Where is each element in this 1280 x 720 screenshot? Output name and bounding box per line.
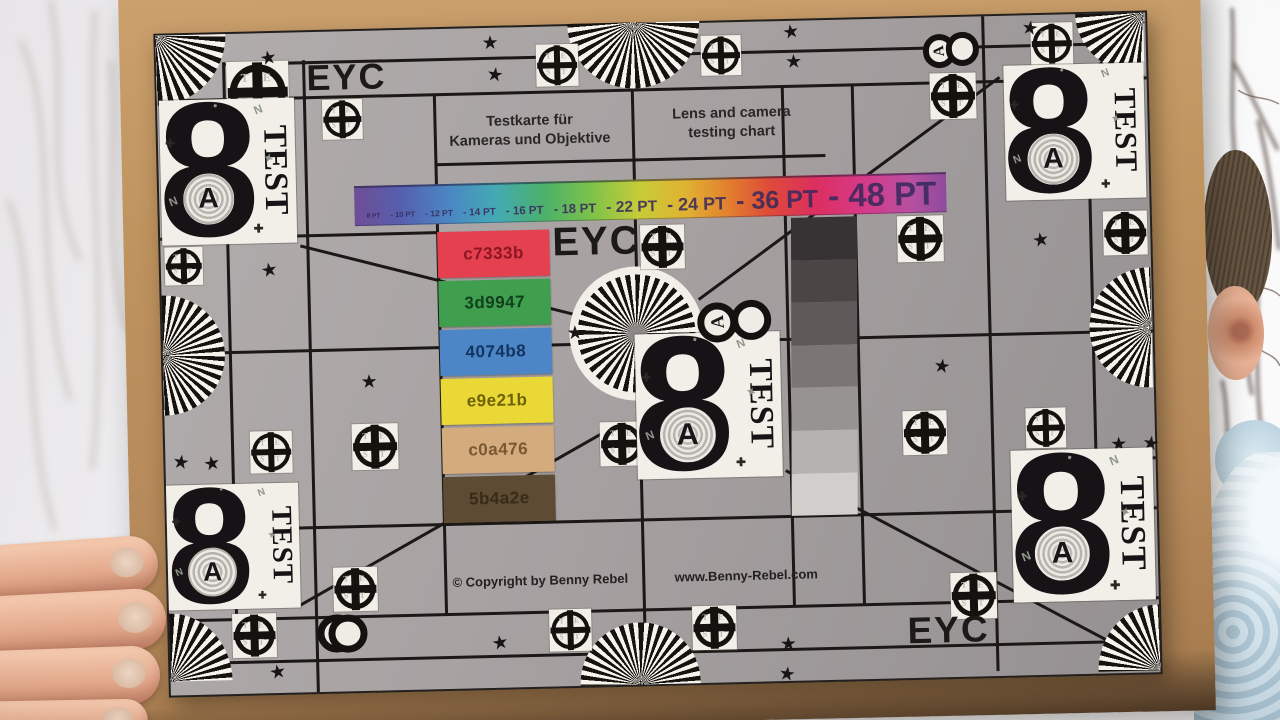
star-marker: ★ (566, 324, 583, 343)
cross-marker-letter: T (546, 52, 552, 60)
cross-marker-letter: S (908, 242, 913, 251)
cross-marker-letter: S (546, 68, 551, 76)
cross-marker-letter: E (929, 418, 935, 426)
cross-marker-letter: S (332, 122, 336, 130)
cross-marker-letter: T (650, 233, 656, 241)
title-german-line2: Kameras und Objektive (449, 129, 611, 152)
cross-marker-letter: E (957, 81, 963, 90)
circled-a-letter: A (1051, 536, 1073, 571)
title-german-line1: Testkarte für (486, 111, 573, 132)
test-block-decor-glyph: ✚ (1110, 579, 1120, 591)
cross-marker-letter: T (702, 614, 708, 622)
circled-a-letter: A (676, 417, 699, 453)
test-block: 8TESTAN✚✦N✚▪ (159, 98, 297, 246)
cross-marker-letter: T (362, 432, 368, 441)
star-marker: ★ (481, 34, 498, 53)
cross-marker-letter: S (703, 631, 708, 639)
color-patch: 5b4a2e (443, 474, 556, 523)
color-patch-label: e9e21b (466, 390, 527, 411)
test-block: 8TESTAN✚✦N✚▪ (166, 483, 301, 611)
cross-marker-letter: T (610, 430, 616, 438)
cross-marker: TEST (692, 605, 737, 650)
grayscale-step (792, 472, 858, 516)
cross-marker: TEST (536, 44, 579, 87)
cross-marker-letter: S (344, 592, 349, 600)
copyright-text: © Copyright by Benny Rebel (444, 553, 637, 608)
mini-eight-marker: A (696, 295, 773, 346)
mini-eight-marker: A (921, 28, 980, 71)
star-marker: ★ (777, 664, 796, 685)
cross-marker-letter: T (957, 98, 963, 107)
cross-marker-letter: E (626, 430, 632, 438)
cross-marker-letter: S (1113, 236, 1118, 244)
fingernail (102, 707, 134, 720)
star-marker: ★ (268, 662, 288, 684)
cross-marker: TEST (322, 99, 363, 140)
cross-marker-letter: T (940, 81, 946, 90)
cross-marker-letter: T (908, 224, 914, 233)
font-size-label: - 36 PT (736, 185, 819, 216)
cross-marker: TEST (929, 72, 976, 119)
cross-marker: TEST (897, 215, 944, 262)
eyc-label-top-left: EYC (306, 58, 387, 96)
cross-marker-letter: T (725, 58, 730, 66)
cross-marker-letter: T (929, 435, 935, 443)
color-patch: 4074b8 (439, 328, 552, 377)
test-chart: EYC EYC EYC Testkarte für Kameras und Ob… (153, 10, 1162, 697)
cross-marker-letter: T (1113, 219, 1119, 227)
siemens-fan (161, 294, 226, 415)
cross-marker-letter: T (913, 419, 919, 427)
cross-marker-letter: E (724, 42, 729, 50)
cross-marker: TEST (250, 431, 293, 474)
test-block: 8TESTAN✚✦N✚▪ (635, 331, 783, 479)
cross-marker-letter: S (913, 436, 918, 444)
finger (0, 587, 167, 656)
circled-a-letter: A (203, 556, 223, 587)
eyc-label-bottom-right: EYC (907, 610, 990, 649)
eyc-label-center: EYC (552, 220, 641, 262)
test-block-decor-glyph: ✚ (258, 591, 267, 601)
person-ear (1208, 286, 1264, 380)
color-patch: e9e21b (441, 376, 554, 425)
cross-marker-letter: S (941, 99, 946, 108)
cross-marker: TEST (1103, 210, 1148, 255)
cross-marker-letter: T (275, 454, 281, 462)
test-block: 8TESTAN✚✦N✚▪ (1003, 62, 1146, 200)
font-size-label: - 16 PT (506, 205, 544, 218)
cross-marker-letter: E (258, 621, 264, 629)
cross-marker-letter: T (718, 630, 724, 638)
cross-marker-letter: E (379, 432, 385, 441)
font-size-label: - 14 PT (463, 207, 496, 219)
color-patch-label: 4074b8 (465, 341, 526, 362)
cross-marker-letter: E (1129, 219, 1135, 227)
test-block-decor-glyph: ✚ (172, 518, 181, 528)
test-word: TEST (264, 485, 300, 606)
mini-eight-circle (729, 298, 772, 341)
mini-eight-circle (329, 614, 368, 653)
test-block: 8TESTAN✚✦N✚▪ (1010, 447, 1156, 602)
circled-a-letter: A (198, 182, 219, 215)
cross-marker-letter: S (610, 447, 615, 455)
grayscale-step (792, 429, 858, 473)
test-block-decor-glyph: ✚ (1101, 179, 1110, 190)
font-size-bar: 8 PT- 10 PT- 12 PT- 14 PT- 16 PT- 18 PT-… (354, 172, 947, 226)
grayscale-step (791, 387, 857, 431)
font-size-label: - 10 PT (390, 210, 415, 220)
color-patch-label: 5b4a2e (469, 488, 530, 509)
color-patch: 3d9947 (438, 279, 551, 328)
cross-marker-letter: T (626, 446, 632, 454)
font-size-label: - 48 PT (828, 174, 937, 215)
cross-marker-letter: T (574, 632, 580, 640)
star-marker: ★ (485, 65, 504, 86)
test-word: TEST (1111, 450, 1154, 597)
cross-marker-letter: T (1129, 235, 1135, 243)
finger (0, 699, 148, 720)
cross-marker-letter: E (574, 616, 580, 624)
grayscale-step (791, 259, 857, 303)
font-size-label: - 22 PT (606, 198, 657, 217)
fingernail (117, 601, 154, 634)
cross-marker-letter: E (718, 613, 724, 621)
star-marker: ★ (258, 48, 278, 70)
cross-marker-letter: S (243, 638, 248, 646)
fingernail (111, 657, 146, 688)
mini-eight-marker: A (317, 611, 367, 656)
test-block-decor-glyph: ✚ (1017, 490, 1027, 502)
star-marker: ★ (932, 356, 951, 377)
cross-marker: TEST (333, 567, 378, 612)
font-size-label: 8 PT (367, 213, 381, 220)
cross-marker-letter: S (651, 250, 656, 258)
color-patch: c7333b (437, 230, 550, 279)
siemens-fan (579, 621, 700, 686)
cross-marker-letter: T (359, 592, 365, 600)
cross-marker-letter: T (331, 107, 336, 115)
star-marker: ★ (781, 21, 801, 43)
cross-marker-letter: T (710, 43, 715, 51)
mini-eight-a-letter: A (707, 315, 729, 330)
cross-marker-letter: T (260, 439, 266, 447)
title-box-german: Testkarte für Kameras und Objektive (433, 97, 626, 166)
cross-marker-letter: E (666, 233, 672, 241)
color-patch: c0a476 (442, 425, 555, 474)
cross-marker-letter: T (961, 581, 967, 590)
star-marker: ★ (490, 632, 510, 654)
font-size-label: - 12 PT (425, 208, 453, 219)
star-marker: ★ (259, 260, 279, 282)
cross-marker-letter: T (259, 638, 265, 646)
cross-marker-letter: T (559, 617, 565, 625)
grayscale-wedge (791, 216, 858, 516)
title-english-line2: testing chart (688, 122, 775, 143)
cross-marker-letter: S (260, 455, 265, 463)
star-marker: ★ (360, 373, 377, 392)
cross-marker-letter: T (561, 68, 567, 76)
grayscale-step (791, 216, 857, 260)
cross-marker-letter: S (961, 599, 966, 608)
cross-marker-letter: E (359, 575, 365, 583)
color-patch-label: c0a476 (468, 439, 528, 460)
color-patch-column: c7333b3d99474074b8e9e21bc0a4765b4a2e (437, 230, 556, 527)
cross-marker: TEST (352, 423, 399, 470)
color-patch-label: c7333b (463, 243, 524, 264)
cross-marker-letter: T (379, 449, 385, 458)
circled-a-letter: A (1043, 142, 1064, 175)
siemens-fan (1088, 267, 1153, 388)
grayscale-step (791, 301, 857, 345)
left-branches (8, 0, 125, 530)
cross-marker-letter: T (666, 249, 672, 257)
cross-marker: TEST (549, 609, 592, 652)
test-word: TEST (740, 334, 781, 474)
font-size-label: - 18 PT (553, 200, 596, 216)
cross-marker-letter: E (924, 224, 930, 233)
star-marker: ★ (785, 53, 802, 72)
font-size-label: - 24 PT (667, 193, 727, 215)
cross-marker: TEST (640, 224, 685, 269)
test-word: TEST (255, 100, 296, 240)
cross-marker-letter: S (363, 450, 368, 459)
star-marker: ★ (780, 635, 797, 654)
title-box-english: Lens and camera testing chart (637, 90, 826, 156)
cross-marker: TEST (701, 35, 742, 76)
test-block-decor-glyph: ✚ (1010, 101, 1019, 112)
test-block-decor-glyph: ✚ (254, 223, 264, 235)
cross-marker-letter: E (275, 438, 281, 446)
test-block-decor-glyph: ✚ (736, 457, 746, 469)
cross-marker-letter: E (561, 52, 567, 60)
color-patch-label: 3d9947 (464, 292, 525, 313)
cross-marker-letter: S (559, 633, 564, 641)
photo-stage: EYC EYC EYC Testkarte für Kameras und Ob… (0, 0, 1280, 720)
cross-marker-letter: E (263, 72, 271, 84)
fingernail (109, 546, 145, 578)
cross-marker-letter: E (978, 581, 984, 590)
cross-marker-letter: E (346, 106, 351, 114)
siemens-fan (567, 21, 701, 90)
cross-marker-letter: T (978, 598, 984, 607)
website-text: www.Benny-Rebel.com (656, 548, 837, 602)
cross-marker: TEST (902, 410, 947, 455)
cross-marker-letter: S (710, 58, 714, 66)
cross-marker-letter: T (346, 122, 351, 130)
star-marker: ★ (1031, 230, 1051, 252)
test-word: TEST (1106, 65, 1145, 195)
grayscale-step (791, 344, 857, 388)
test-block-decor-glyph: ✚ (641, 372, 651, 384)
test-block-decor-glyph: ✚ (165, 138, 175, 150)
cross-marker-letter: T (343, 575, 349, 583)
cross-marker-letter: T (925, 241, 931, 250)
